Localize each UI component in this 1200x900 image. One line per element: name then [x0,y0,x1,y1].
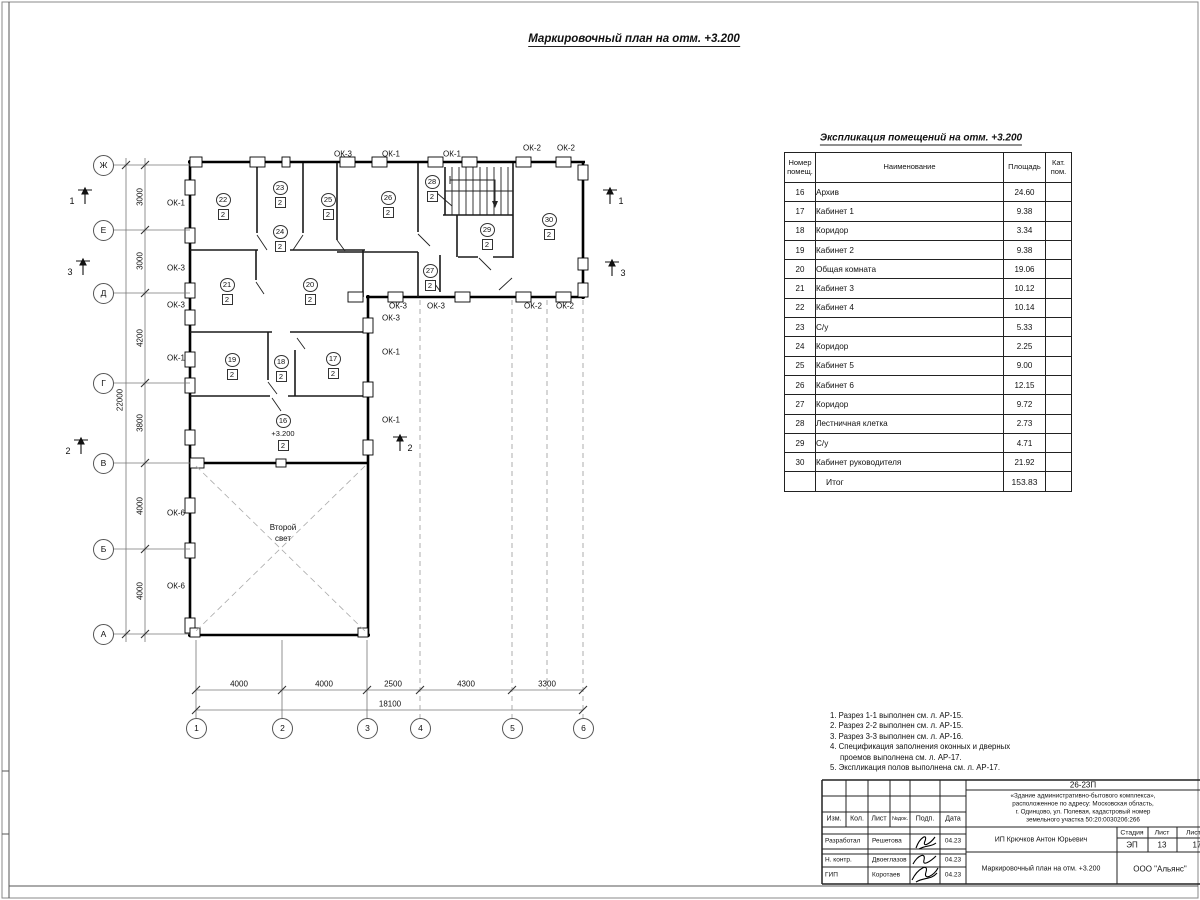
axis-letter: Е [93,220,114,241]
cell-num: 19 [785,240,816,259]
note-line: 5. Экспликация полов выполнена см. л. АР… [830,763,1010,773]
note-line: 1. Разрез 1-1 выполнен см. л. АР-15. [830,711,1010,721]
tb-name3: Коротаев [872,872,900,879]
floor-type-tag: 2 [222,294,233,305]
level-mark: +3.200 [271,429,295,438]
axis-number: 5 [502,718,523,739]
cell-cat [1046,298,1072,317]
cell-area: 21.92 [1004,453,1046,472]
floor-type-tag: 2 [425,280,436,291]
window-label: ОК-2 [556,302,574,311]
room-number: 18 [274,355,289,369]
tb-role2: Н. контр. [825,857,852,864]
room-marker: 242 [272,225,288,252]
col-header-area: Площадь [1004,153,1046,183]
col-header-name: Наименование [816,153,1004,183]
tb-desc-line4: земельного участка 50:20:0030206:266 [1026,817,1140,824]
tb-desc-line3: г. Одинцово, ул. Полевая, кадастровый но… [1016,809,1151,816]
floor-type-tag: 2 [278,440,289,451]
cell-area: 4.71 [1004,433,1046,452]
window-label: ОК-3 [389,302,407,311]
window-label: ОК-1 [167,199,185,208]
cell-area: 9.38 [1004,202,1046,221]
drawing-sheet: Маркировочный план на отм. +3.200 Экспли… [0,0,1200,900]
window-label: ОК-6 [167,509,185,518]
window-label: ОК-3 [167,301,185,310]
window-label: ОК-1 [443,150,461,159]
exterior-walls [188,160,585,637]
window-label: ОК-1 [382,348,400,357]
room-marker: 212 [219,278,235,305]
cell-name: Кабинет 5 [816,356,1004,375]
floor-type-tag: 2 [427,191,438,202]
cell-cat [1046,337,1072,356]
tb-sheets-value: 17 [1193,841,1200,850]
room-marker: 272 [422,264,438,291]
cell-name: Коридор [816,395,1004,414]
cell-num: 24 [785,337,816,356]
cell-area: 10.14 [1004,298,1046,317]
cell-area: 9.38 [1004,240,1046,259]
tb-role3: ГИП [825,872,838,879]
schedule-row: 19Кабинет 29.38 [785,240,1072,259]
tb-doc-title: Маркировочный план на отм. +3.200 [982,866,1101,873]
window-label: ОК-1 [167,354,185,363]
tb-date1: 04.23 [945,838,961,845]
cell-num [785,472,816,491]
cell-area: 19.06 [1004,260,1046,279]
window-blocks [185,157,588,637]
section-number: 2 [65,446,70,456]
cell-num: 27 [785,395,816,414]
cell-cat [1046,240,1072,259]
room-number: 21 [220,278,235,292]
cell-name: С/у [816,318,1004,337]
tb-stage-label: Стадия [1120,830,1143,837]
cell-name: Архив [816,183,1004,202]
floor-type-tag: 2 [544,229,555,240]
cell-name: Кабинет 4 [816,298,1004,317]
room-marker: 282 [424,175,440,202]
cell-cat [1046,472,1072,491]
note-line: 3. Разрез 3-3 выполнен см. л. АР-16. [830,732,1010,742]
room-marker: 182 [273,355,289,382]
note-line: 2. Разрез 2-2 выполнен см. л. АР-15. [830,721,1010,731]
dim-total-label: 18100 [379,700,401,709]
floor-type-tag: 2 [383,207,394,218]
axis-letter: Г [93,373,114,394]
cell-area: 9.00 [1004,356,1046,375]
room-number: 17 [326,352,341,366]
stair-icon [445,167,513,215]
tb-col-data: Дата [945,816,961,823]
tb-date2: 04.23 [945,857,961,864]
cell-name: Кабинет 1 [816,202,1004,221]
schedule-total-row: Итог153.83 [785,472,1072,491]
schedule-row: 17Кабинет 19.38 [785,202,1072,221]
tb-col-podp: Подп. [916,816,935,823]
dim-label: 3800 [136,414,145,432]
room-marker: 192 [224,353,240,380]
note-line: проемов выполнена см. л. АР-17. [830,753,1010,763]
tb-desc-line1: «Здание административно-бытового комплек… [1010,793,1155,800]
cell-cat [1046,260,1072,279]
cell-num: 22 [785,298,816,317]
cell-area: 12.15 [1004,375,1046,394]
room-number: 23 [273,181,288,195]
dim-label: 3300 [538,680,556,689]
schedule-row: 23С/у5.33 [785,318,1072,337]
tb-sheet-value: 13 [1158,841,1167,850]
axis-number: 6 [573,718,594,739]
second-light-label: Второй свет [270,522,296,544]
dim-label: 4000 [136,497,145,515]
cell-num: 18 [785,221,816,240]
schedule-row: 21Кабинет 310.12 [785,279,1072,298]
dim-label: 3000 [136,252,145,270]
cell-cat [1046,356,1072,375]
plan-title: Маркировочный план на отм. +3.200 [528,33,740,47]
floor-type-tag: 2 [275,241,286,252]
notes-block: 1. Разрез 1-1 выполнен см. л. АР-15. 2. … [830,711,1010,773]
cell-cat [1046,318,1072,337]
schedule-row: 27Коридор9.72 [785,395,1072,414]
tb-client: ИП Крючков Антон Юрьевич [995,837,1088,844]
cell-num: 25 [785,356,816,375]
tb-col-kol: Кол. [850,816,864,823]
axis-letter: В [93,453,114,474]
cell-num: 16 [785,183,816,202]
cell-name: Коридор [816,221,1004,240]
floor-type-tag: 2 [328,368,339,379]
axis-letter: Б [93,539,114,560]
window-label: ОК-6 [167,582,185,591]
room-marker: 232 [272,181,288,208]
section-number: 3 [67,267,72,277]
schedule-header-row: Номер помещ. Наименование Площадь Кат. п… [785,153,1072,183]
cell-area: 3.34 [1004,221,1046,240]
schedule-row: 22Кабинет 410.14 [785,298,1072,317]
second-light-line1: Второй [270,522,296,533]
tb-sheet-label: Лист [1155,830,1170,837]
schedule-row: 18Коридор3.34 [785,221,1072,240]
room-marker: 252 [320,193,336,220]
tb-project-code: 26-23П [1070,781,1096,790]
room-marker: 172 [325,352,341,379]
cell-cat [1046,375,1072,394]
cell-num: 23 [785,318,816,337]
second-light-cross [196,466,365,631]
tb-name1: Решетова [872,838,902,845]
cell-num: 29 [785,433,816,452]
axis-number: 3 [357,718,378,739]
tb-sheets-label: Листов [1186,830,1200,837]
section-number: 3 [620,268,625,278]
cell-cat [1046,453,1072,472]
tb-date3: 04.23 [945,872,961,879]
room-marker: 302 [541,213,557,240]
room-number: 26 [381,191,396,205]
tb-company: ООО "Альянс" [1133,865,1187,874]
cell-area: 2.73 [1004,414,1046,433]
cell-name: Кабинет 6 [816,375,1004,394]
floor-type-tag: 2 [276,371,287,382]
floor-type-tag: 2 [275,197,286,208]
axis-number: 1 [186,718,207,739]
dim-label: 3000 [136,188,145,206]
section-mark-arrows [74,188,619,454]
cell-num: 17 [785,202,816,221]
dim-label: 4000 [230,680,248,689]
dim-label: 4300 [457,680,475,689]
window-label: ОК-3 [334,150,352,159]
room-number: 25 [321,193,336,207]
cell-area: 10.12 [1004,279,1046,298]
floor-type-tag: 2 [323,209,334,220]
total-label: Итог [816,472,1004,491]
floor-type-tag: 2 [482,239,493,250]
tb-col-izm: Изм. [827,816,842,823]
room-number: 28 [425,175,440,189]
col-header-cat: Кат. пом. [1046,153,1072,183]
schedule-row: 29С/у4.71 [785,433,1072,452]
dim-label: 4000 [315,680,333,689]
cell-name: Общая комната [816,260,1004,279]
room-number: 24 [273,225,288,239]
total-area: 153.83 [1004,472,1046,491]
cell-cat [1046,414,1072,433]
room-schedule-table: Номер помещ. Наименование Площадь Кат. п… [784,152,1072,492]
window-label: ОК-1 [382,150,400,159]
floor-type-tag: 2 [227,369,238,380]
room-number: 22 [216,193,231,207]
axis-letter: Ж [93,155,114,176]
schedule-row: 28Лестничная клетка2.73 [785,414,1072,433]
cell-cat [1046,183,1072,202]
tb-col-list: Лист [871,816,886,823]
room-number: 27 [423,264,438,278]
cell-name: Кабинет руководителя [816,453,1004,472]
section-number: 1 [69,196,74,206]
dim-total-label: 22000 [116,389,125,411]
window-label: ОК-3 [382,314,400,323]
tb-desc-line2: расположенное по адресу: Московская обла… [1012,801,1154,808]
tb-name2: Двоеглазов [872,857,907,864]
schedule-row: 26Кабинет 612.15 [785,375,1072,394]
room-number: 29 [480,223,495,237]
window-label: ОК-2 [557,144,575,153]
cell-num: 28 [785,414,816,433]
cell-cat [1046,202,1072,221]
cell-cat [1046,433,1072,452]
cell-num: 20 [785,260,816,279]
room-marker: 222 [215,193,231,220]
dim-label: 4000 [136,582,145,600]
tb-stage-value: ЭП [1126,841,1138,850]
cell-name: С/у [816,433,1004,452]
col-header-num: Номер помещ. [785,153,816,183]
floor-type-tag: 2 [218,209,229,220]
window-label: ОК-1 [382,416,400,425]
cell-cat [1046,395,1072,414]
schedule-row: 30Кабинет руководителя21.92 [785,453,1072,472]
schedule-row: 16Архив24.60 [785,183,1072,202]
cell-name: Кабинет 2 [816,240,1004,259]
note-line: 4. Спецификация заполнения оконных и две… [830,742,1010,752]
cell-cat [1046,221,1072,240]
cell-num: 30 [785,453,816,472]
room-number: 16 [276,414,291,428]
room-number: 20 [303,278,318,292]
cell-area: 5.33 [1004,318,1046,337]
schedule-row: 24Коридор2.25 [785,337,1072,356]
axis-number: 4 [410,718,431,739]
second-light-line2: свет [270,533,296,544]
grid-dashed-lines [420,300,583,718]
room-number: 30 [542,213,557,227]
room-marker: 292 [479,223,495,250]
tb-col-ndok: №док. [892,816,908,822]
floor-type-tag: 2 [305,294,316,305]
cell-name: Кабинет 3 [816,279,1004,298]
cell-area: 24.60 [1004,183,1046,202]
dim-label: 4200 [136,329,145,347]
room-number: 19 [225,353,240,367]
cell-name: Лестничная клетка [816,414,1004,433]
cell-num: 26 [785,375,816,394]
axis-number: 2 [272,718,293,739]
axis-letter: А [93,624,114,645]
room-marker-16: 16+3.2002 [271,414,295,451]
dim-label: 2500 [384,680,402,689]
tb-role1: Разработал [825,838,860,845]
window-label: ОК-2 [524,302,542,311]
signature-scribbles [912,837,938,882]
section-number: 1 [618,196,623,206]
window-label: ОК-3 [167,264,185,273]
section-number: 2 [407,443,412,453]
window-label: ОК-2 [523,144,541,153]
schedule-row: 25Кабинет 59.00 [785,356,1072,375]
room-marker: 262 [380,191,396,218]
schedule-title: Экспликация помещений на отм. +3.200 [820,133,1022,146]
schedule-row: 20Общая комната19.06 [785,260,1072,279]
cell-num: 21 [785,279,816,298]
axis-letter: Д [93,283,114,304]
cell-cat [1046,279,1072,298]
window-label: ОК-3 [427,302,445,311]
cell-area: 9.72 [1004,395,1046,414]
room-marker: 202 [302,278,318,305]
cell-name: Коридор [816,337,1004,356]
cell-area: 2.25 [1004,337,1046,356]
